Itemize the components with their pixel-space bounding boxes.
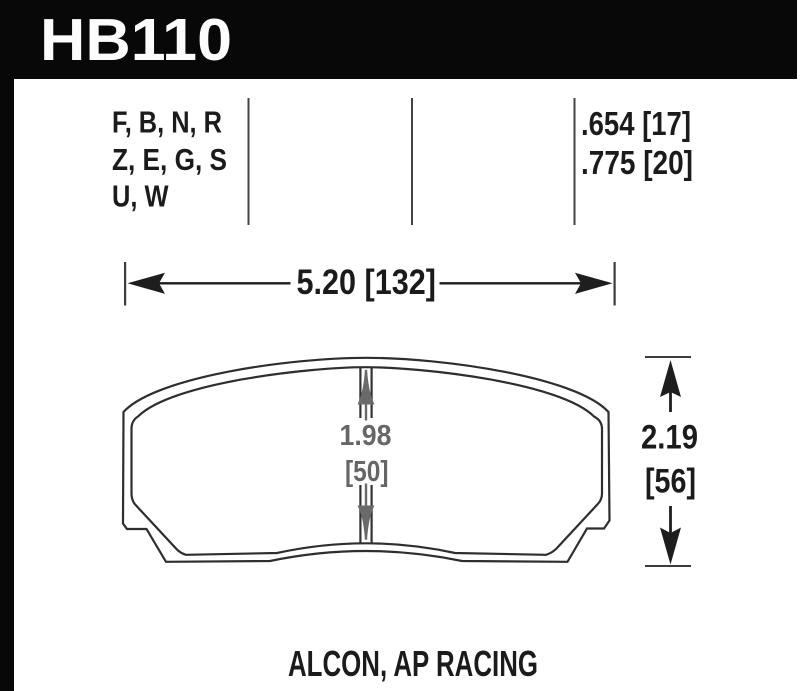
svg-text:2.19: 2.19 [641,419,698,457]
svg-text:U, W: U, W [112,179,169,214]
svg-text:1.98: 1.98 [340,420,392,452]
svg-text:F, B, N, R: F, B, N, R [112,105,222,140]
svg-text:ALCON, AP RACING: ALCON, AP RACING [288,643,538,684]
svg-text:HB110: HB110 [40,7,232,73]
svg-text:Z, E, G, S: Z, E, G, S [112,142,227,177]
svg-text:5.20 [132]: 5.20 [132] [297,263,437,302]
svg-text:.775 [20]: .775 [20] [581,144,693,181]
svg-text:[50]: [50] [345,456,389,488]
svg-text:[56]: [56] [645,463,696,501]
svg-text:.654 [17]: .654 [17] [581,105,691,142]
